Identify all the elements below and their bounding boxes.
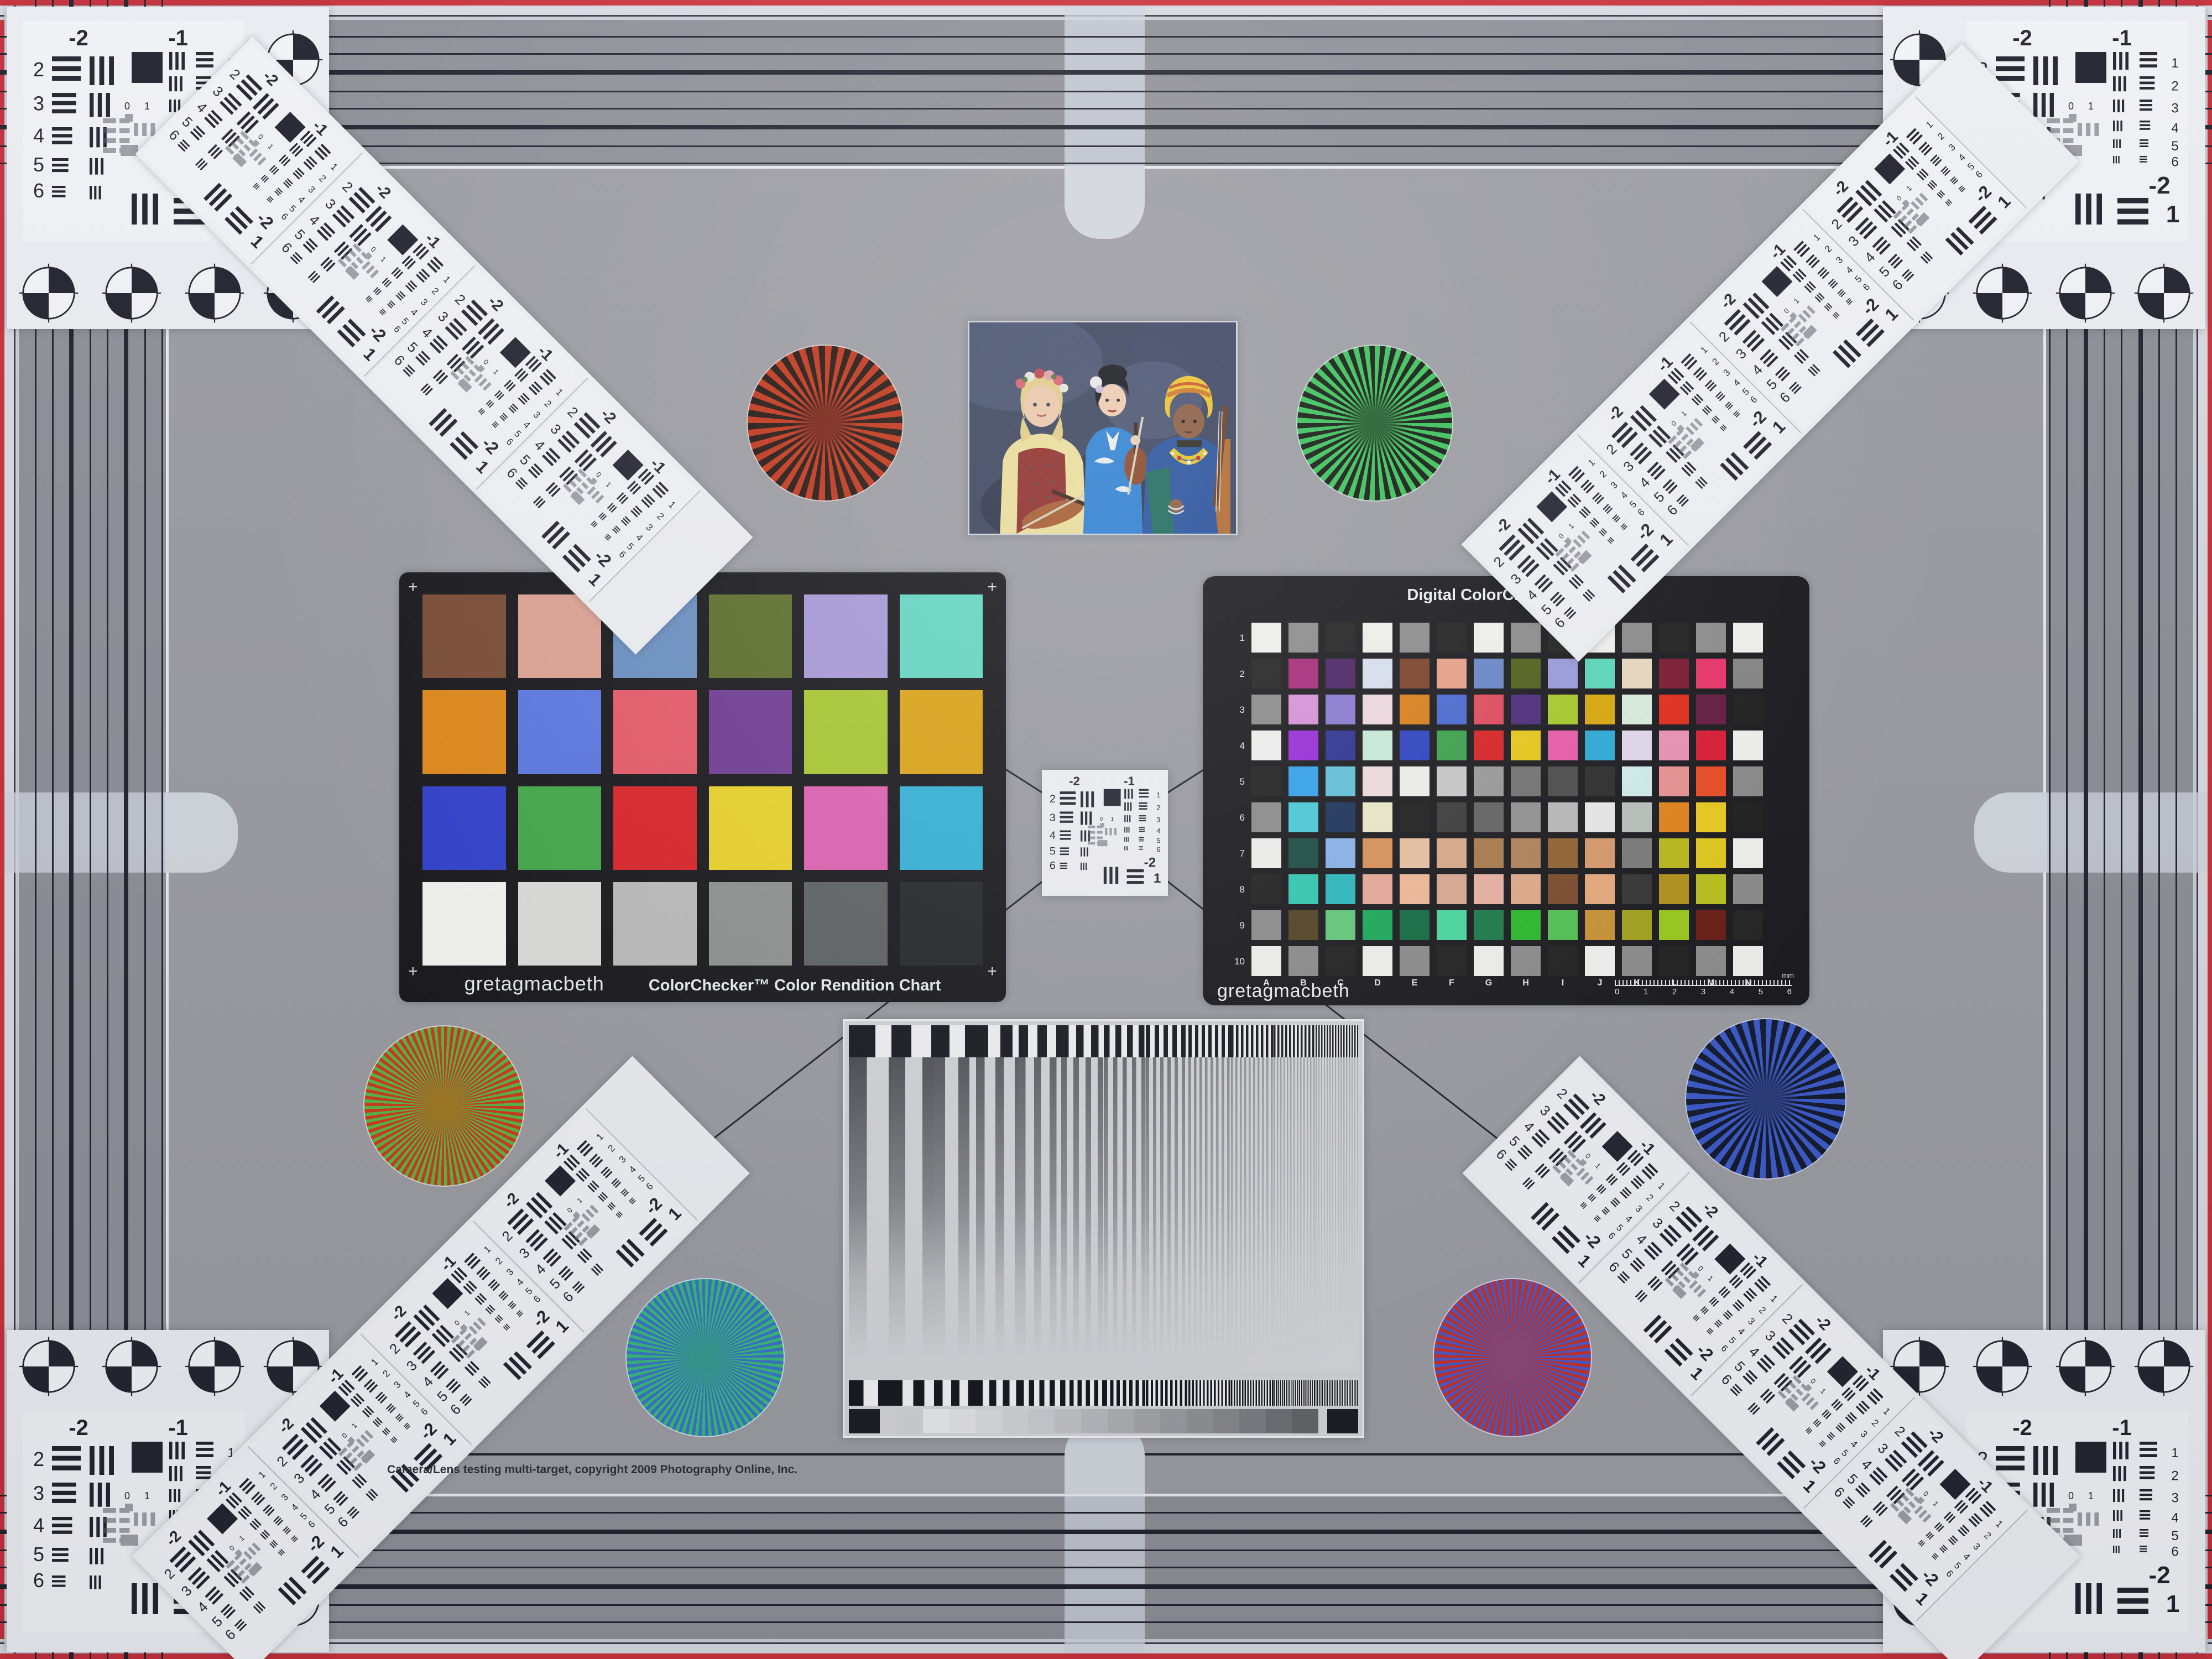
sg-patch-N10 <box>1733 946 1763 976</box>
sg-col-label-B: B <box>1288 978 1318 988</box>
cc-patch-bluish-green <box>900 594 983 678</box>
sg-row-label-1: 1 <box>1223 633 1245 644</box>
star-mid-left <box>363 1025 525 1187</box>
svg-text:-2: -2 <box>2148 172 2170 199</box>
sg-col-label-L: L <box>1659 978 1689 988</box>
sg-col-label-H: H <box>1511 978 1541 988</box>
svg-text:5: 5 <box>33 1543 44 1566</box>
sg-patch-C9 <box>1326 910 1355 940</box>
gray-step-0 <box>896 1409 923 1433</box>
sg-patch-D6 <box>1363 802 1392 832</box>
cc-patch-red <box>613 786 697 870</box>
sg-patch-C4 <box>1326 731 1355 760</box>
sg-patch-E4 <box>1400 731 1430 760</box>
sg-patch-F6 <box>1437 802 1467 832</box>
cc-patch-neutral-8 <box>518 882 602 966</box>
svg-text:6: 6 <box>2171 155 2178 170</box>
cc-patch-black <box>900 882 983 966</box>
sg-patch-E5 <box>1400 766 1430 796</box>
gray-step-4 <box>1002 1409 1029 1433</box>
sg-patch-F4 <box>1437 731 1467 760</box>
svg-text:-1: -1 <box>2112 26 2132 50</box>
sg-patch-D10 <box>1363 946 1392 976</box>
sg-patch-E7 <box>1400 838 1430 868</box>
sg-patch-J10 <box>1585 946 1615 976</box>
sg-patch-D2 <box>1363 659 1392 688</box>
sweep-segment <box>1104 1380 1146 1406</box>
quadrant-target-icon <box>2054 262 2116 324</box>
svg-text:6: 6 <box>1050 860 1056 872</box>
sg-patch-F5 <box>1437 766 1467 796</box>
sg-patch-A8 <box>1251 874 1281 904</box>
svg-text:1: 1 <box>1110 816 1114 822</box>
sg-ruler-tick-1: 1 <box>1644 987 1648 997</box>
svg-text:4: 4 <box>33 1514 44 1537</box>
registration-mark: + <box>987 579 997 596</box>
sg-patch-E9 <box>1400 910 1430 940</box>
sg-patch-M5 <box>1696 766 1726 796</box>
star-bottom-left <box>625 1278 785 1437</box>
sg-patch-L2 <box>1659 659 1689 688</box>
cc-patch-neutral-3.5 <box>804 882 888 966</box>
sg-patch-M4 <box>1696 731 1726 760</box>
sg-patch-K7 <box>1622 838 1652 868</box>
sg-patch-L3 <box>1659 695 1689 724</box>
star-bottom-left-center-blur <box>627 1279 784 1436</box>
sg-ruler-tick-6: 6 <box>1787 987 1792 997</box>
sg-patch-G2 <box>1474 659 1504 688</box>
colorchecker-title-label: ColorChecker™ Color Rendition Chart <box>649 977 941 995</box>
sg-patch-F7 <box>1437 838 1467 868</box>
sg-patch-M9 <box>1696 910 1726 940</box>
sg-patch-D9 <box>1363 910 1392 940</box>
sg-patch-I3 <box>1548 695 1578 724</box>
sg-ruler-unit: mm <box>1782 971 1794 979</box>
colorchecker-patch-grid <box>422 594 983 966</box>
sg-patch-J7 <box>1585 838 1615 868</box>
sg-patch-C1 <box>1326 623 1355 653</box>
sg-patch-N3 <box>1733 695 1763 724</box>
red-edge-bottom <box>0 1653 2212 1659</box>
gray-step-9 <box>1134 1409 1160 1433</box>
sg-row-label-5: 5 <box>1223 776 1245 787</box>
sweep-segment <box>1061 1025 1104 1057</box>
sweep-segment <box>891 1025 934 1057</box>
sg-patch-J3 <box>1585 695 1615 724</box>
svg-text:2: 2 <box>2171 1469 2178 1484</box>
sg-patch-I10 <box>1548 946 1578 976</box>
svg-text:0: 0 <box>1100 816 1103 822</box>
gray-step-1 <box>923 1409 950 1433</box>
sg-patch-A10 <box>1251 946 1281 976</box>
quadrant-target-icon <box>2133 262 2195 324</box>
gray-step-7 <box>1081 1409 1108 1433</box>
sg-patch-D8 <box>1363 874 1392 904</box>
quadrant-target-icon <box>18 262 80 324</box>
sg-patch-B3 <box>1288 695 1318 724</box>
sg-patch-N5 <box>1733 766 1763 796</box>
sg-patch-E2 <box>1400 659 1430 688</box>
sg-row-label-6: 6 <box>1223 812 1245 823</box>
sg-patch-A5 <box>1251 766 1281 796</box>
star-top-left-center-blur <box>748 346 902 500</box>
sg-patch-K9 <box>1622 910 1652 940</box>
gray-step-13 <box>1239 1409 1266 1433</box>
sweep-segment <box>1061 1380 1104 1406</box>
sg-row-label-3: 3 <box>1223 705 1245 716</box>
alignment-tab-head-left <box>165 792 238 873</box>
sweep-segment <box>1019 1025 1061 1057</box>
sweep-segment <box>1019 1380 1061 1406</box>
sg-patch-N1 <box>1733 623 1763 653</box>
sg-patch-L8 <box>1659 874 1689 904</box>
svg-text:1: 1 <box>2171 1446 2178 1460</box>
sg-patch-I9 <box>1548 910 1578 940</box>
sg-patch-J5 <box>1585 766 1615 796</box>
sg-patch-B1 <box>1288 623 1318 653</box>
sg-patch-F2 <box>1437 659 1467 688</box>
sg-patch-H9 <box>1511 910 1541 940</box>
svg-text:-2: -2 <box>69 26 88 50</box>
star-bottom-right-center-blur <box>1434 1279 1591 1436</box>
quadrant-target-icon <box>2133 1335 2195 1397</box>
sg-patch-G7 <box>1474 838 1504 868</box>
svg-text:1: 1 <box>2166 201 2179 228</box>
svg-text:6: 6 <box>1156 845 1160 853</box>
sg-patch-J9 <box>1585 910 1615 940</box>
sg-patch-H2 <box>1511 659 1541 688</box>
sg-ruler-numbers: 0123456 <box>1615 987 1792 997</box>
star-top-left <box>747 345 904 502</box>
sg-patch-B8 <box>1288 874 1318 904</box>
sg-patch-B7 <box>1288 838 1318 868</box>
svg-text:-2: -2 <box>1069 774 1080 788</box>
quadrant-target-icon <box>2054 1335 2116 1397</box>
sg-row-label-10: 10 <box>1223 956 1245 967</box>
sg-col-label-F: F <box>1437 978 1467 988</box>
sg-patch-F1 <box>1437 623 1467 653</box>
sg-patch-K2 <box>1622 659 1652 688</box>
sg-patch-H6 <box>1511 802 1541 832</box>
sg-patch-J2 <box>1585 659 1615 688</box>
sweep-segment <box>1316 1025 1358 1057</box>
sg-patch-E6 <box>1400 802 1430 832</box>
svg-text:-2: -2 <box>1144 855 1156 870</box>
step-wedge-gap <box>1318 1409 1327 1433</box>
sweep-segment <box>934 1025 977 1057</box>
sg-patch-L10 <box>1659 946 1689 976</box>
sg-patch-M8 <box>1696 874 1726 904</box>
svg-text:-2: -2 <box>69 1416 88 1440</box>
star-mid-left-center-blur <box>364 1026 524 1186</box>
sg-patch-A6 <box>1251 802 1281 832</box>
sg-patch-N7 <box>1733 838 1763 868</box>
sg-patch-C6 <box>1326 802 1355 832</box>
cc-patch-orange-yellow <box>900 690 983 774</box>
svg-text:6: 6 <box>2171 1545 2178 1559</box>
sg-col-label-D: D <box>1363 978 1392 988</box>
sg-row-label-8: 8 <box>1223 884 1245 895</box>
svg-text:1: 1 <box>144 1490 150 1501</box>
sg-patch-I2 <box>1548 659 1578 688</box>
grayscale-step-wedge <box>849 1409 1358 1433</box>
sg-patch-B9 <box>1288 910 1318 940</box>
sg-patch-J4 <box>1585 731 1615 760</box>
sg-row-label-2: 2 <box>1223 669 1245 680</box>
sg-patch-K4 <box>1622 731 1652 760</box>
copyright-text: Camera/Lens testing multi-target, copyri… <box>387 1463 807 1477</box>
sg-patch-M3 <box>1696 695 1726 724</box>
sg-patch-N2 <box>1733 659 1763 688</box>
cc-patch-dark-skin <box>422 594 506 678</box>
sg-patch-A4 <box>1251 731 1281 760</box>
sg-patch-G5 <box>1474 766 1504 796</box>
registration-mark: + <box>408 579 418 596</box>
cc-patch-orange <box>422 690 506 774</box>
sg-patch-G1 <box>1474 623 1504 653</box>
gray-step-2 <box>949 1409 975 1433</box>
svg-text:5: 5 <box>1050 846 1056 858</box>
svg-text:4: 4 <box>33 124 44 147</box>
sg-patch-C5 <box>1326 766 1355 796</box>
sg-col-label-I: I <box>1548 978 1578 988</box>
cc-patch-white <box>422 882 506 966</box>
red-edge-top <box>0 0 2212 6</box>
svg-text:0: 0 <box>124 1490 130 1501</box>
sg-ruler-tick-5: 5 <box>1759 987 1763 997</box>
svg-text:2: 2 <box>2171 79 2178 94</box>
sweep-segment <box>1146 1380 1188 1406</box>
svg-text:0: 0 <box>2068 101 2074 112</box>
svg-text:-1: -1 <box>2112 1416 2132 1440</box>
sg-patch-G4 <box>1474 731 1504 760</box>
sweep-segment <box>1316 1380 1358 1406</box>
cc-patch-foliage <box>709 594 792 678</box>
sg-patch-L1 <box>1659 623 1689 653</box>
sweep-bar-strip-bottom <box>849 1380 1358 1406</box>
sg-patch-K3 <box>1622 695 1652 724</box>
star-top-right <box>1296 345 1453 502</box>
sg-patch-C8 <box>1326 874 1355 904</box>
portrait-photo <box>968 321 1238 535</box>
colorchecker-classic-chart: + + + + gretagmacbeth ColorChecker™ Colo… <box>399 572 1006 1002</box>
sg-patch-G8 <box>1474 874 1504 904</box>
svg-text:1: 1 <box>1156 791 1160 799</box>
sg-patch-L9 <box>1659 910 1689 940</box>
sg-patch-B10 <box>1288 946 1318 976</box>
gray-step-8 <box>1108 1409 1134 1433</box>
alignment-tab-head-right <box>1974 792 2047 873</box>
sg-patch-N4 <box>1733 731 1763 760</box>
sweep-segment <box>976 1025 1019 1057</box>
cc-patch-blue-flower <box>804 594 888 678</box>
test-chart-stage: + + + + gretagmacbeth ColorChecker™ Colo… <box>0 0 2212 1659</box>
svg-text:1: 1 <box>1154 871 1161 886</box>
center-resolution-chart: -2-123456123456-2101 <box>1042 770 1168 896</box>
quadrant-target-icon <box>101 262 163 324</box>
svg-text:-2: -2 <box>2148 1562 2170 1589</box>
red-edge-right <box>2208 0 2212 1659</box>
svg-text:3: 3 <box>2171 1491 2178 1506</box>
sg-patch-B5 <box>1288 766 1318 796</box>
sg-patch-K8 <box>1622 874 1652 904</box>
sg-ruler-tick-0: 0 <box>1615 987 1619 997</box>
sg-patch-G9 <box>1474 910 1504 940</box>
sg-patch-N6 <box>1733 802 1763 832</box>
quadrant-target-icon <box>184 262 246 324</box>
sg-patch-G3 <box>1474 695 1504 724</box>
sg-patch-A2 <box>1251 659 1281 688</box>
sg-col-label-M: M <box>1696 978 1726 988</box>
cc-patch-green <box>518 786 602 870</box>
sg-patch-J6 <box>1585 802 1615 832</box>
sweep-segment <box>934 1380 977 1406</box>
sg-patch-F3 <box>1437 695 1467 724</box>
cc-patch-yellow-green <box>804 690 888 774</box>
sg-patch-E3 <box>1400 695 1430 724</box>
sg-patch-E8 <box>1400 874 1430 904</box>
quadrant-target-icon <box>18 1335 80 1397</box>
svg-text:-2: -2 <box>2012 1416 2032 1440</box>
svg-text:1: 1 <box>2088 1490 2094 1501</box>
sweep-segment <box>1146 1025 1188 1057</box>
sg-col-label-J: J <box>1585 978 1615 988</box>
sg-patch-A1 <box>1251 623 1281 653</box>
sg-patch-K10 <box>1622 946 1652 976</box>
sg-patch-C2 <box>1326 659 1355 688</box>
sg-patch-L6 <box>1659 802 1689 832</box>
gray-step-12 <box>1213 1409 1239 1433</box>
sg-patch-H5 <box>1511 766 1541 796</box>
svg-text:6: 6 <box>33 1569 44 1592</box>
sg-patch-C10 <box>1326 946 1355 976</box>
sg-patch-D4 <box>1363 731 1392 760</box>
sweep-segment <box>1274 1025 1316 1057</box>
sg-patch-B4 <box>1288 731 1318 760</box>
svg-text:5: 5 <box>2171 1528 2178 1543</box>
sg-col-label-G: G <box>1474 978 1504 988</box>
sg-patch-I4 <box>1548 731 1578 760</box>
sg-patch-M1 <box>1696 623 1726 653</box>
svg-text:3: 3 <box>33 1482 44 1505</box>
sweep-fade-overlay <box>849 1057 1358 1370</box>
cc-patch-blue <box>422 786 506 870</box>
sweep-segment <box>849 1025 891 1057</box>
digital-colorchecker-sg-chart: Digital ColorChecker® SG gretagmacbeth m… <box>1203 576 1809 1005</box>
sg-patch-A9 <box>1251 910 1281 940</box>
sg-patch-I6 <box>1548 802 1578 832</box>
sg-patch-F9 <box>1437 910 1467 940</box>
sg-patch-C7 <box>1326 838 1355 868</box>
sg-col-label-K: K <box>1622 978 1652 988</box>
sg-patch-D3 <box>1363 695 1392 724</box>
sweep-segment <box>1274 1380 1316 1406</box>
cc-patch-cyan <box>900 786 983 870</box>
cc-patch-magenta <box>804 786 888 870</box>
cc-patch-neutral-5 <box>709 882 792 966</box>
svg-text:0: 0 <box>124 101 130 112</box>
sg-patch-G6 <box>1474 802 1504 832</box>
colorchecker-caption: gretagmacbeth ColorChecker™ Color Rendit… <box>399 972 1006 995</box>
sg-patch-C3 <box>1326 695 1355 724</box>
sg-patch-M7 <box>1696 838 1726 868</box>
sg-patch-F8 <box>1437 874 1467 904</box>
sg-patch-N9 <box>1733 910 1763 940</box>
svg-text:0: 0 <box>2068 1490 2074 1501</box>
sg-patch-grid <box>1251 623 1763 976</box>
svg-text:-1: -1 <box>1124 774 1135 788</box>
star-mid-right-center-blur <box>1686 1019 1845 1178</box>
svg-text:-1: -1 <box>168 26 188 50</box>
sg-patch-H3 <box>1511 695 1541 724</box>
gray-step-11 <box>1187 1409 1213 1433</box>
sg-col-label-A: A <box>1251 978 1281 988</box>
sg-patch-M10 <box>1696 946 1726 976</box>
svg-text:5: 5 <box>1156 837 1160 845</box>
svg-text:5: 5 <box>2171 139 2178 154</box>
sg-patch-J8 <box>1585 874 1615 904</box>
gray-step-14 <box>1266 1409 1292 1433</box>
gray-step-6 <box>1055 1409 1081 1433</box>
svg-text:3: 3 <box>2171 101 2178 116</box>
portrait-photo-art <box>969 322 1236 534</box>
sg-patch-L5 <box>1659 766 1689 796</box>
cc-patch-purple <box>709 690 792 774</box>
svg-text:-2: -2 <box>2012 26 2032 50</box>
gray-step-5 <box>1028 1409 1055 1433</box>
cc-patch-neutral-6.5 <box>613 882 697 966</box>
quadrant-target-icon <box>1971 262 2033 324</box>
svg-text:3: 3 <box>33 92 44 115</box>
sweep-segment <box>1188 1025 1231 1057</box>
svg-text:6: 6 <box>33 179 44 202</box>
svg-text:5: 5 <box>33 153 44 176</box>
sg-col-label-C: C <box>1326 978 1355 988</box>
sg-ruler-tick-2: 2 <box>1672 987 1677 997</box>
step-wedge-black-right <box>1327 1409 1358 1433</box>
sg-patch-L7 <box>1659 838 1689 868</box>
sg-ruler-tick-4: 4 <box>1730 987 1734 997</box>
quadrant-target-icon <box>1971 1335 2033 1397</box>
sg-patch-M6 <box>1696 802 1726 832</box>
step-wedge-gap <box>880 1409 896 1433</box>
svg-text:2: 2 <box>33 1448 44 1470</box>
svg-text:4: 4 <box>1050 830 1056 842</box>
gray-step-3 <box>975 1409 1002 1433</box>
svg-text:1: 1 <box>2171 56 2178 71</box>
sg-patch-A3 <box>1251 695 1281 724</box>
sweep-segment <box>849 1380 891 1406</box>
star-bottom-right <box>1433 1278 1592 1437</box>
cc-patch-yellow <box>709 786 792 870</box>
svg-text:4: 4 <box>2171 121 2178 136</box>
sg-patch-H10 <box>1511 946 1541 976</box>
svg-text:1: 1 <box>2166 1590 2179 1618</box>
svg-text:1: 1 <box>2088 101 2094 112</box>
sg-patch-N8 <box>1733 874 1763 904</box>
sg-patch-B6 <box>1288 802 1318 832</box>
sweep-bar-strip-top <box>849 1025 1358 1057</box>
red-edge-left <box>0 0 4 1659</box>
sg-col-label-E: E <box>1400 978 1430 988</box>
step-wedge-steps <box>896 1409 1318 1433</box>
sg-patch-K5 <box>1622 766 1652 796</box>
svg-text:3: 3 <box>1156 816 1160 824</box>
star-top-right-center-blur <box>1297 346 1452 500</box>
svg-text:2: 2 <box>1156 804 1160 812</box>
sg-patch-G10 <box>1474 946 1504 976</box>
sg-row-label-9: 9 <box>1223 920 1245 931</box>
